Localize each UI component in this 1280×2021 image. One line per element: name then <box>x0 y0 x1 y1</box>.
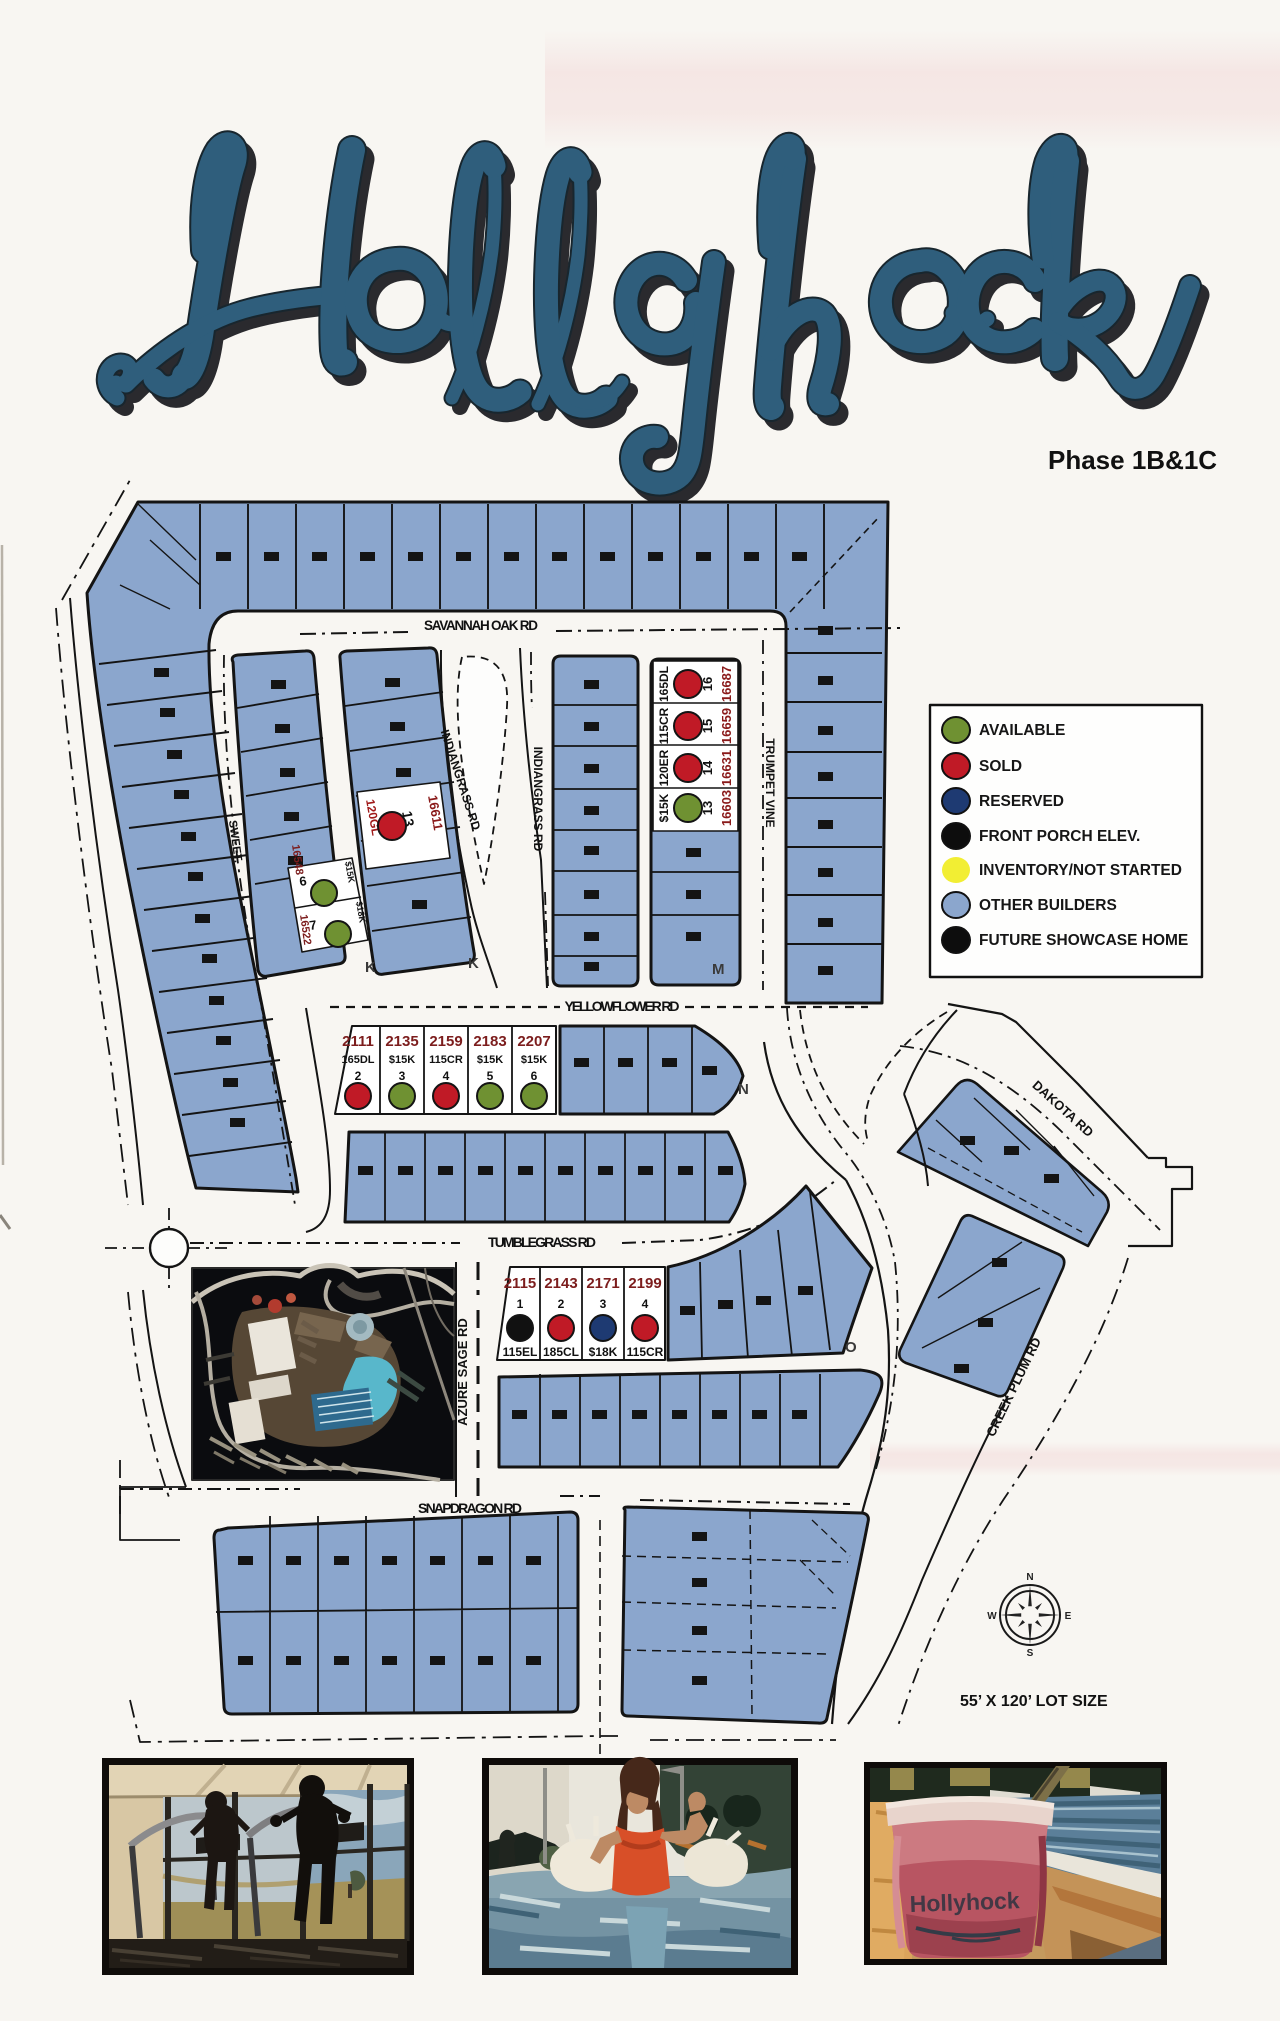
svg-text:3: 3 <box>399 1069 406 1083</box>
svg-text:16: 16 <box>700 677 715 691</box>
svg-text:2207: 2207 <box>517 1033 550 1050</box>
svg-text:4: 4 <box>443 1069 450 1083</box>
svg-text:FRONT PORCH ELEV.: FRONT PORCH ELEV. <box>979 828 1140 845</box>
svg-text:185CL: 185CL <box>543 1345 579 1359</box>
svg-text:55’ X 120’ LOT SIZE: 55’ X 120’ LOT SIZE <box>960 1693 1108 1710</box>
svg-text:165DL: 165DL <box>657 666 671 702</box>
svg-text:6: 6 <box>531 1069 538 1083</box>
svg-text:E: E <box>1065 1611 1072 1622</box>
svg-text:K: K <box>365 959 376 976</box>
svg-text:Phase 1B&1C: Phase 1B&1C <box>1048 445 1217 475</box>
svg-text:OTHER BUILDERS: OTHER BUILDERS <box>979 897 1117 914</box>
svg-text:2171: 2171 <box>586 1275 619 1292</box>
svg-text:TRUMPET VINE: TRUMPET VINE <box>763 738 777 827</box>
svg-text:5: 5 <box>487 1069 494 1083</box>
svg-text:2: 2 <box>355 1069 362 1083</box>
svg-text:115EL: 115EL <box>503 1345 538 1359</box>
svg-text:2183: 2183 <box>473 1033 506 1050</box>
svg-text:2: 2 <box>558 1297 565 1311</box>
svg-text:SOLD: SOLD <box>979 758 1022 775</box>
svg-text:16659: 16659 <box>719 708 734 744</box>
svg-text:INDIANGRASS RD: INDIANGRASS RD <box>531 747 545 852</box>
svg-text:13: 13 <box>700 801 715 815</box>
svg-text:$15K: $15K <box>389 1054 415 1066</box>
svg-text:AZURE SAGE RD: AZURE SAGE RD <box>455 1318 470 1426</box>
svg-text:O: O <box>845 1339 857 1356</box>
svg-text:2115: 2115 <box>504 1275 537 1292</box>
svg-text:RESERVED: RESERVED <box>979 793 1064 810</box>
svg-text:165DL: 165DL <box>341 1054 374 1066</box>
svg-text:S: S <box>1027 1648 1034 1659</box>
svg-text:2111: 2111 <box>342 1033 374 1050</box>
svg-text:AVAILABLE: AVAILABLE <box>979 722 1065 739</box>
svg-text:2159: 2159 <box>429 1033 462 1050</box>
svg-text:1: 1 <box>517 1297 524 1311</box>
svg-text:115CR: 115CR <box>657 707 671 744</box>
svg-text:M: M <box>712 961 725 978</box>
svg-text:SAVANNAH OAK RD: SAVANNAH OAK RD <box>424 618 538 633</box>
svg-text:4: 4 <box>642 1297 649 1311</box>
svg-text:115CR: 115CR <box>627 1345 664 1359</box>
svg-text:YELLOWFLOWER RD: YELLOWFLOWER RD <box>565 998 680 1014</box>
svg-text:FUTURE SHOWCASE HOME: FUTURE SHOWCASE HOME <box>979 932 1188 949</box>
svg-text:$15K: $15K <box>477 1054 503 1066</box>
svg-text:14: 14 <box>700 760 715 775</box>
svg-text:3: 3 <box>600 1297 607 1311</box>
svg-text:W: W <box>987 1611 997 1622</box>
svg-text:15: 15 <box>700 719 715 733</box>
svg-text:16687: 16687 <box>719 666 734 702</box>
svg-text:$18K: $18K <box>589 1345 618 1359</box>
svg-text:2135: 2135 <box>385 1033 418 1050</box>
svg-text:16603: 16603 <box>719 790 734 826</box>
svg-text:16631: 16631 <box>719 750 734 786</box>
svg-text:INVENTORY/NOT STARTED: INVENTORY/NOT STARTED <box>979 862 1182 879</box>
svg-text:2199: 2199 <box>628 1275 661 1292</box>
svg-text:2143: 2143 <box>544 1275 577 1292</box>
svg-text:TUMBLEGRASS RD: TUMBLEGRASS RD <box>488 1234 596 1250</box>
svg-text:120ER: 120ER <box>657 749 671 786</box>
svg-text:$15K: $15K <box>657 793 671 822</box>
svg-text:115CR: 115CR <box>429 1054 463 1066</box>
svg-text:N: N <box>1026 1572 1033 1583</box>
svg-text:N: N <box>738 1081 749 1098</box>
svg-text:$15K: $15K <box>521 1054 547 1066</box>
svg-text:Hollyhock: Hollyhock <box>909 1887 1020 1917</box>
svg-text:K: K <box>468 955 479 972</box>
